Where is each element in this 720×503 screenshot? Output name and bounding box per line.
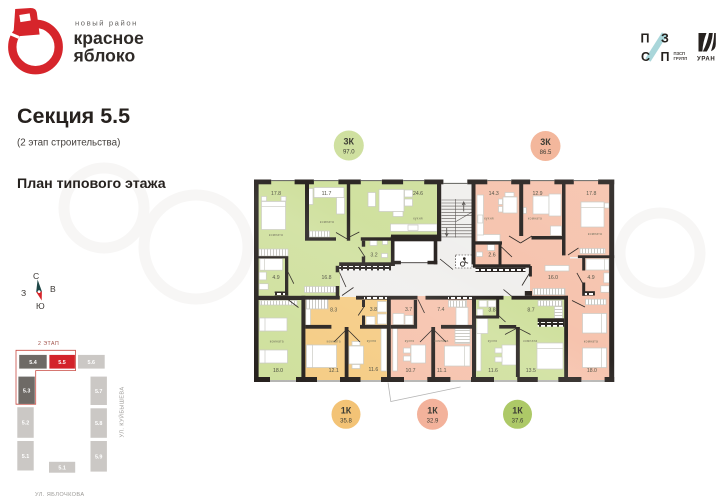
svg-text:П: П [641,32,650,46]
svg-text:яблоко: яблоко [73,46,136,66]
svg-text:5.4: 5.4 [29,360,37,366]
svg-text:УЛ. КУЙБЫШЕВА: УЛ. КУЙБЫШЕВА [118,387,126,438]
svg-text:(2 этап строительства): (2 этап строительства) [17,138,120,149]
svg-text:З: З [21,288,26,298]
svg-text:В: В [50,284,56,294]
svg-text:Ю: Ю [36,301,45,311]
svg-text:5.8: 5.8 [95,421,103,427]
svg-text:1К: 1К [341,406,352,416]
svg-text:С: С [641,50,650,64]
svg-text:5.9: 5.9 [95,455,103,461]
svg-text:новый район: новый район [75,19,138,28]
svg-text:3К: 3К [344,137,355,147]
svg-text:ГРУПП: ГРУПП [674,56,688,61]
svg-text:УРАН: УРАН [697,57,715,63]
svg-text:5.1: 5.1 [22,454,30,460]
svg-text:5.3: 5.3 [23,389,31,395]
svg-text:УЛ. ЯБЛОЧКОВА: УЛ. ЯБЛОЧКОВА [35,492,85,498]
svg-text:32.9: 32.9 [427,419,439,425]
svg-text:П: П [661,50,670,64]
svg-text:86.5: 86.5 [540,150,552,156]
svg-text:35.8: 35.8 [340,419,352,425]
svg-text:1К: 1К [427,406,438,416]
svg-text:5.5: 5.5 [58,360,66,366]
svg-text:37.6: 37.6 [512,419,524,425]
svg-text:План типового этажа: План типового этажа [17,176,166,192]
svg-text:1К: 1К [512,406,523,416]
svg-text:3К: 3К [540,137,551,147]
svg-text:5.7: 5.7 [95,389,103,395]
svg-text:З: З [661,32,669,46]
svg-text:5.1: 5.1 [58,466,66,472]
svg-text:97.0: 97.0 [343,150,355,156]
svg-text:5.2: 5.2 [22,421,30,427]
svg-text:С: С [33,271,39,281]
svg-text:Секция 5.5: Секция 5.5 [17,104,130,128]
svg-text:2 ЭТАП: 2 ЭТАП [38,341,59,347]
svg-text:5.6: 5.6 [88,360,96,366]
